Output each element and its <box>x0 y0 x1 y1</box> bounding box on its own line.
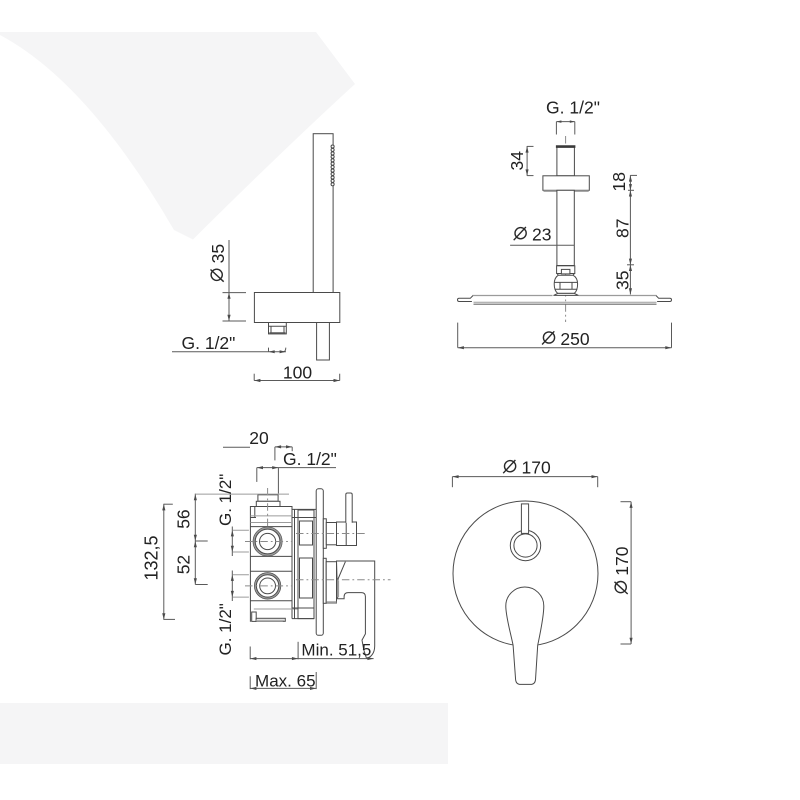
svg-text:18: 18 <box>609 172 629 191</box>
svg-text:Min. 51,5: Min. 51,5 <box>301 641 371 660</box>
svg-text:G. 1/2": G. 1/2" <box>216 603 235 655</box>
svg-text:20: 20 <box>249 428 269 448</box>
svg-text:G. 1/2": G. 1/2" <box>283 449 337 469</box>
svg-text:170: 170 <box>612 546 632 575</box>
svg-text:Max. 65: Max. 65 <box>255 672 315 691</box>
svg-text:87: 87 <box>613 219 633 238</box>
svg-text:100: 100 <box>283 362 312 382</box>
svg-text:23: 23 <box>532 225 551 245</box>
svg-text:G. 1/2": G. 1/2" <box>546 98 600 118</box>
svg-text:52: 52 <box>174 555 194 574</box>
svg-text:250: 250 <box>560 329 589 349</box>
svg-text:170: 170 <box>522 458 551 478</box>
svg-text:56: 56 <box>174 509 194 528</box>
svg-text:G. 1/2": G. 1/2" <box>216 474 235 526</box>
svg-text:G. 1/2": G. 1/2" <box>182 333 236 353</box>
svg-text:35: 35 <box>613 271 633 290</box>
svg-text:35: 35 <box>208 244 228 263</box>
svg-text:34: 34 <box>507 151 527 171</box>
svg-text:132,5: 132,5 <box>142 535 162 580</box>
